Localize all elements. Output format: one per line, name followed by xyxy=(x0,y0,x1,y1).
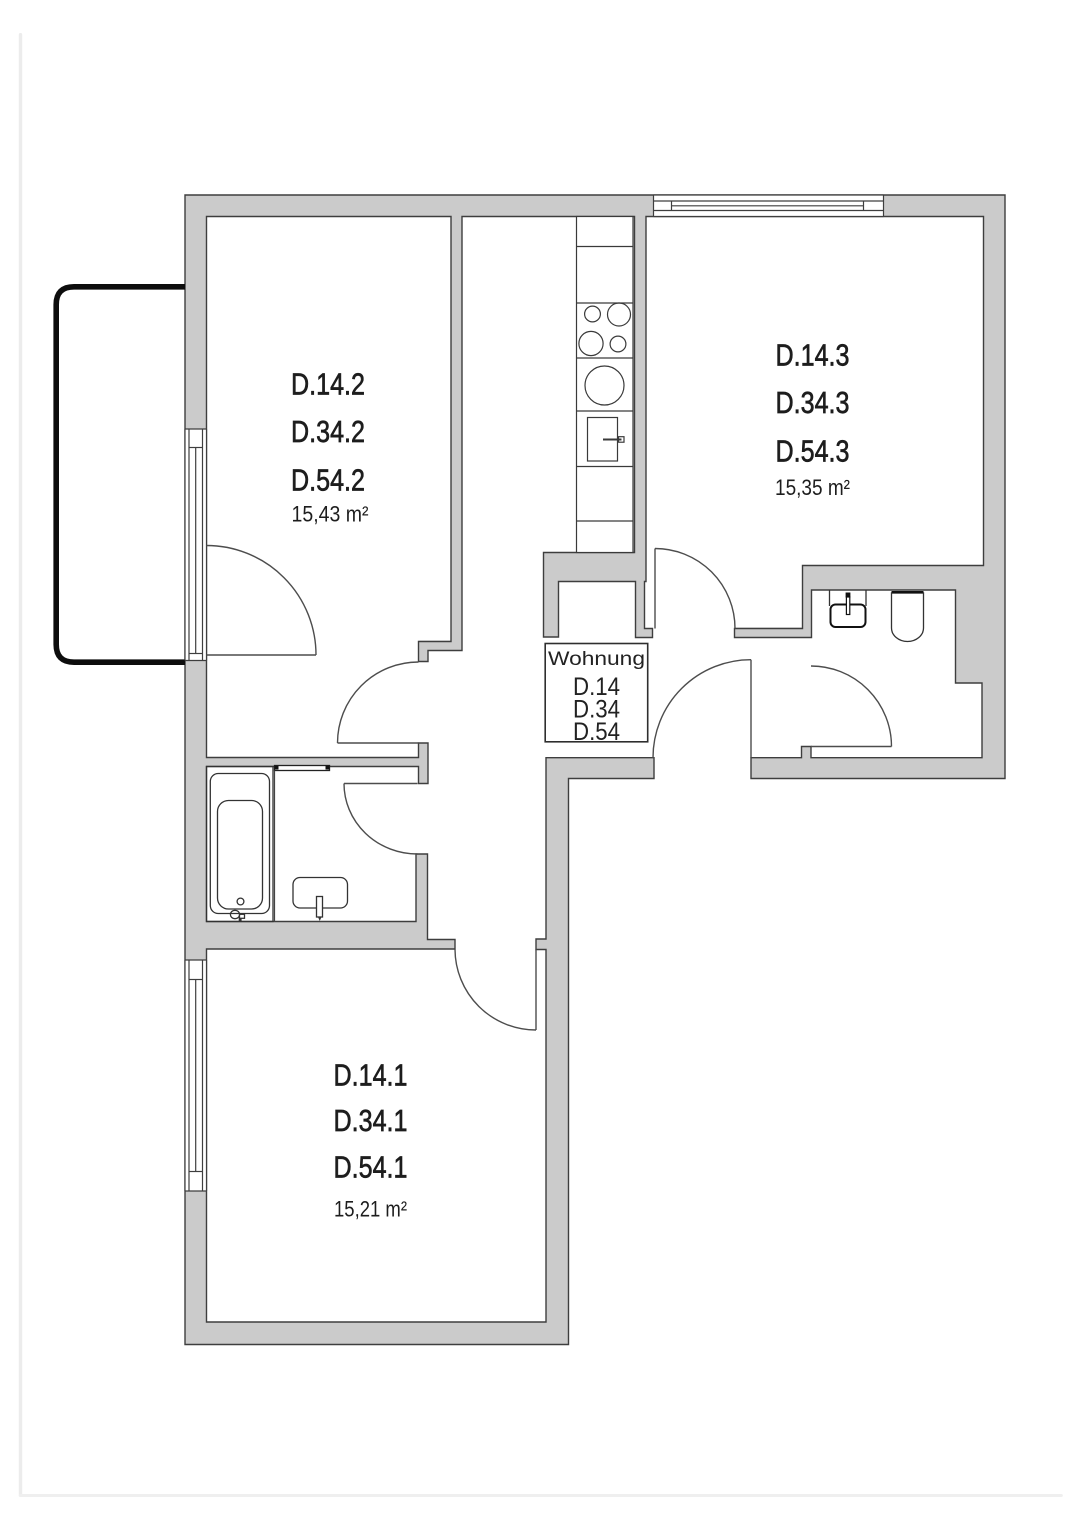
svg-text:D.14.1: D.14.1 xyxy=(334,1059,408,1093)
svg-text:Wohnung: Wohnung xyxy=(548,648,645,670)
svg-text:D.34.2: D.34.2 xyxy=(291,415,365,449)
svg-text:D.54.3: D.54.3 xyxy=(776,435,850,469)
svg-text:D.54.2: D.54.2 xyxy=(291,464,365,498)
svg-text:D.14.2: D.14.2 xyxy=(291,368,365,402)
svg-text:D.54.1: D.54.1 xyxy=(334,1151,408,1185)
svg-text:15,35 m²: 15,35 m² xyxy=(775,475,850,500)
svg-text:15,43 m²: 15,43 m² xyxy=(292,502,369,527)
svg-text:D.34.3: D.34.3 xyxy=(776,386,850,420)
svg-text:D.54: D.54 xyxy=(573,718,620,746)
svg-text:15,21 m²: 15,21 m² xyxy=(334,1197,407,1222)
svg-text:D.34.1: D.34.1 xyxy=(334,1104,408,1138)
svg-text:D.14.3: D.14.3 xyxy=(776,339,850,373)
